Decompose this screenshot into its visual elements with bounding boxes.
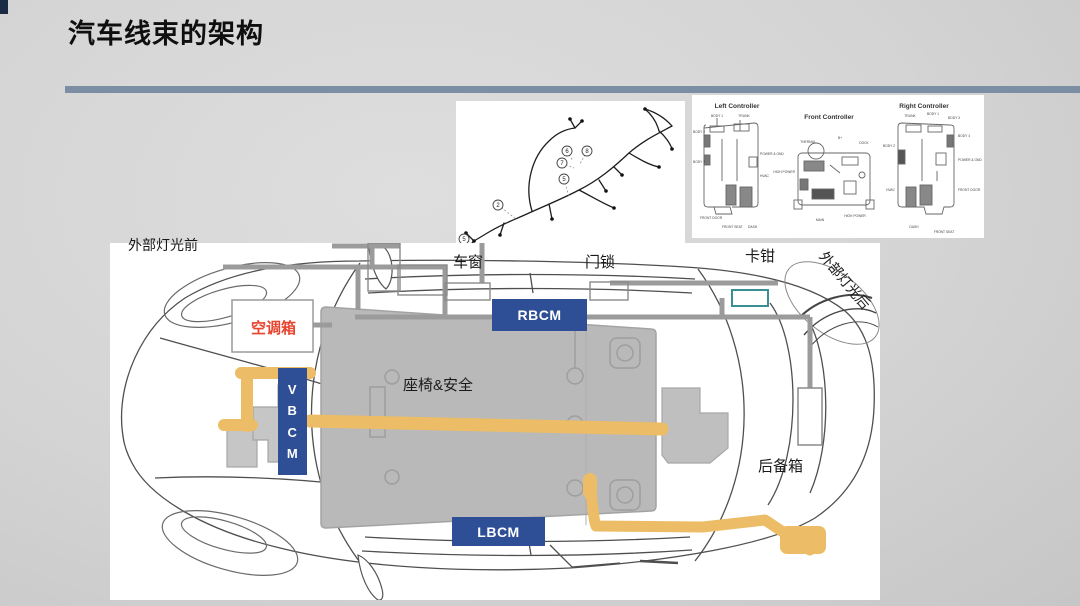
front-label-bplus: B+ [838, 136, 842, 140]
front-headlight-lower [155, 498, 304, 588]
right-label-body3: BODY 3 [948, 116, 960, 120]
left-label-front-door: FRONT DOOR [700, 216, 723, 220]
left-label-power-gnd: POWER & GND [760, 152, 784, 156]
title-divider [65, 86, 1080, 93]
front-controller-body [794, 143, 874, 209]
right-label-body1: BODY 1 [927, 112, 939, 116]
label-door-lock: 门锁 [585, 251, 615, 272]
right-label-hvac: HVAC [886, 188, 896, 192]
front-label-dock: DOCK [859, 141, 869, 145]
right-controller-title: Right Controller [899, 103, 949, 110]
vbcm-module-label: VBCM [286, 379, 299, 465]
front-label-high-power-left: HIGH POWER [773, 170, 795, 174]
controllers-figure: Left Controller Front Controller Right C… [692, 95, 984, 238]
right-label-front-door: FRONT DOOR [958, 188, 981, 192]
label-trunk: 后备箱 [758, 455, 803, 476]
left-label-body1: BODY 1 [711, 114, 723, 118]
label-seats-safety: 座椅&安全 [403, 374, 473, 395]
label-caliper: 卡钳 [745, 245, 775, 266]
front-label-main: MAIN [816, 218, 825, 222]
right-label-body4: BODY 4 [958, 134, 970, 138]
left-label-front-seat: FRONT SEAT [722, 225, 743, 229]
left-label-body3: BODY 3 [693, 160, 705, 164]
front-label-thermal: THERMAL [800, 140, 816, 144]
car-architecture-figure [110, 243, 880, 600]
lbcm-module-box: LBCM [452, 517, 545, 546]
page-title: 汽车线束的架构 [68, 12, 264, 51]
left-controller-title: Left Controller [715, 103, 760, 110]
teal-module-box [732, 290, 768, 306]
right-label-body2: BODY 2 [883, 144, 895, 148]
rear-component-box [798, 388, 822, 445]
front-label-high-power-bottom: HIGH POWER [844, 214, 866, 218]
side-mirror-bottom [358, 555, 383, 600]
right-controller-body [898, 123, 954, 214]
left-label-dash: DASH [748, 225, 758, 229]
wiring-harness-figure: 8 6 7 5 2 5 [456, 101, 685, 244]
label-hvac-box: 空调箱 [251, 317, 296, 338]
vbcm-module-box: VBCM [278, 368, 307, 475]
left-label-body2: BODY 2 [693, 130, 705, 134]
label-window: 车窗 [453, 251, 483, 272]
right-label-trunk: TRUNK [904, 114, 916, 118]
rbcm-module-box: RBCM [492, 299, 587, 331]
slide-corner-mark [0, 0, 8, 14]
right-label-dash: DASH [909, 225, 919, 229]
left-controller-body [704, 118, 758, 214]
front-controller-title: Front Controller [804, 114, 854, 121]
left-label-trunk: TRUNK [738, 114, 750, 118]
orange-harness-endpoint [780, 526, 826, 554]
right-label-front-seat: FRONT SEAT [934, 230, 955, 234]
wiring-harness-drawing: 8 6 7 5 2 5 [456, 101, 685, 244]
controllers-drawing: Left Controller Front Controller Right C… [692, 95, 984, 238]
label-exterior-lights-front: 外部灯光前 [128, 235, 198, 255]
left-label-hvac: HVAC [760, 174, 770, 178]
car-top-view-drawing [110, 243, 880, 600]
right-label-power-gnd: POWER & GND [958, 158, 982, 162]
rear-drive-unit [662, 388, 728, 463]
